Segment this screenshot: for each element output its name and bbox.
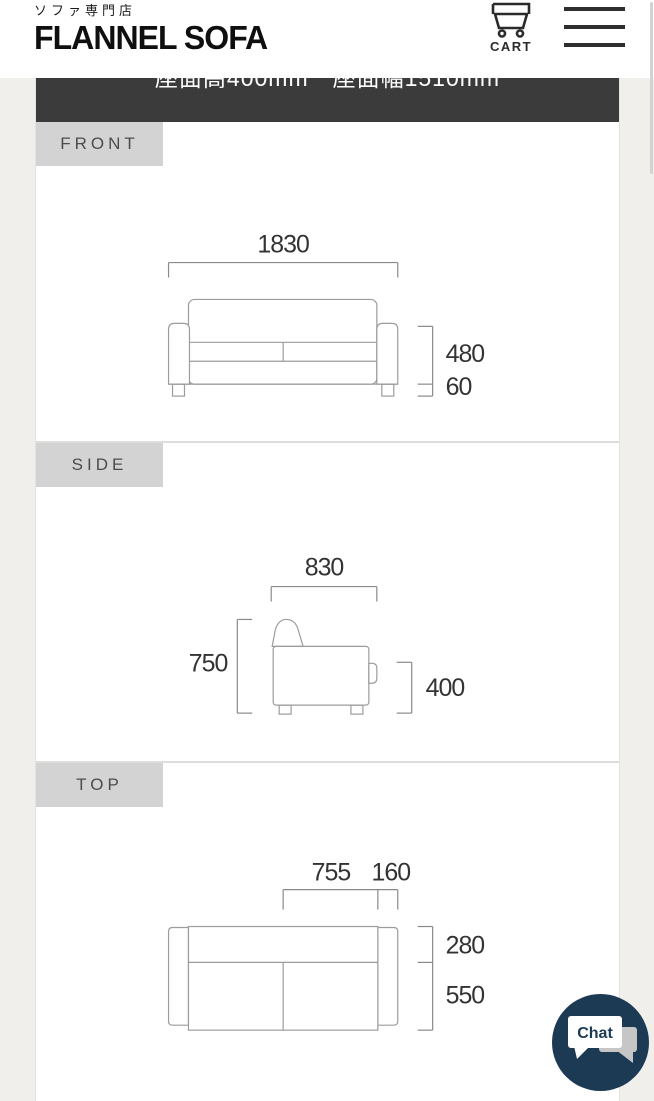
front-body-height-dim: 480 — [446, 340, 485, 368]
section-front: FRONT 1830 — [36, 122, 619, 441]
side-total-height-dim: 750 — [189, 649, 228, 677]
side-height-bracket — [237, 619, 252, 713]
side-seat-height-bracket — [397, 662, 412, 713]
chat-bubbles-icon: Chat — [552, 994, 649, 1091]
front-leg-height-dim: 60 — [446, 373, 472, 401]
front-height-bracket — [418, 326, 433, 396]
front-width-dim: 1830 — [257, 231, 309, 259]
sofa-side-outline — [272, 619, 377, 714]
top-arm-width-dim: 160 — [371, 859, 410, 887]
scrollbar[interactable] — [650, 2, 653, 174]
cart-icon — [490, 2, 532, 38]
top-depth-bracket — [418, 927, 433, 1031]
sofa-top-outline — [169, 927, 398, 1031]
side-depth-bracket — [271, 587, 377, 602]
brand-tagline: ソファ専門店 — [34, 3, 274, 19]
brand-name: FLANNEL SOFA — [34, 20, 267, 56]
cart-label: CART — [482, 39, 540, 54]
section-side: SIDE 830 750 — [36, 441, 619, 761]
brand-logo[interactable]: ソファ専門店 FLANNEL SOFA — [34, 3, 274, 56]
chat-button[interactable]: Chat — [552, 994, 649, 1091]
top-diagram: 755 160 280 550 — [36, 763, 619, 1101]
menu-button[interactable] — [564, 7, 625, 47]
front-width-bracket — [169, 263, 398, 278]
top-seat-depth-dim: 550 — [446, 981, 485, 1009]
side-depth-dim: 830 — [305, 554, 344, 582]
top-width-bracket — [283, 890, 398, 910]
spec-bar: 座面高400mm 座面幅1510mm — [36, 78, 619, 122]
site-header: ソファ専門店 FLANNEL SOFA CART — [0, 0, 654, 78]
cart-button[interactable]: CART — [482, 2, 540, 54]
side-seat-height-dim: 400 — [426, 674, 465, 702]
content-column: 座面高400mm 座面幅1510mm FRONT 1830 — [35, 78, 620, 1101]
hamburger-icon — [564, 7, 625, 11]
top-seat-width-dim: 755 — [312, 859, 351, 887]
front-diagram: 1830 — [36, 122, 619, 440]
chat-label: Chat — [577, 1025, 613, 1042]
sofa-front-outline — [169, 299, 398, 396]
section-top: TOP 755 160 — [36, 761, 619, 1101]
top-back-depth-dim: 280 — [446, 931, 485, 959]
spec-bar-text: 座面高400mm 座面幅1510mm — [155, 78, 500, 90]
side-diagram: 830 750 — [36, 443, 619, 761]
